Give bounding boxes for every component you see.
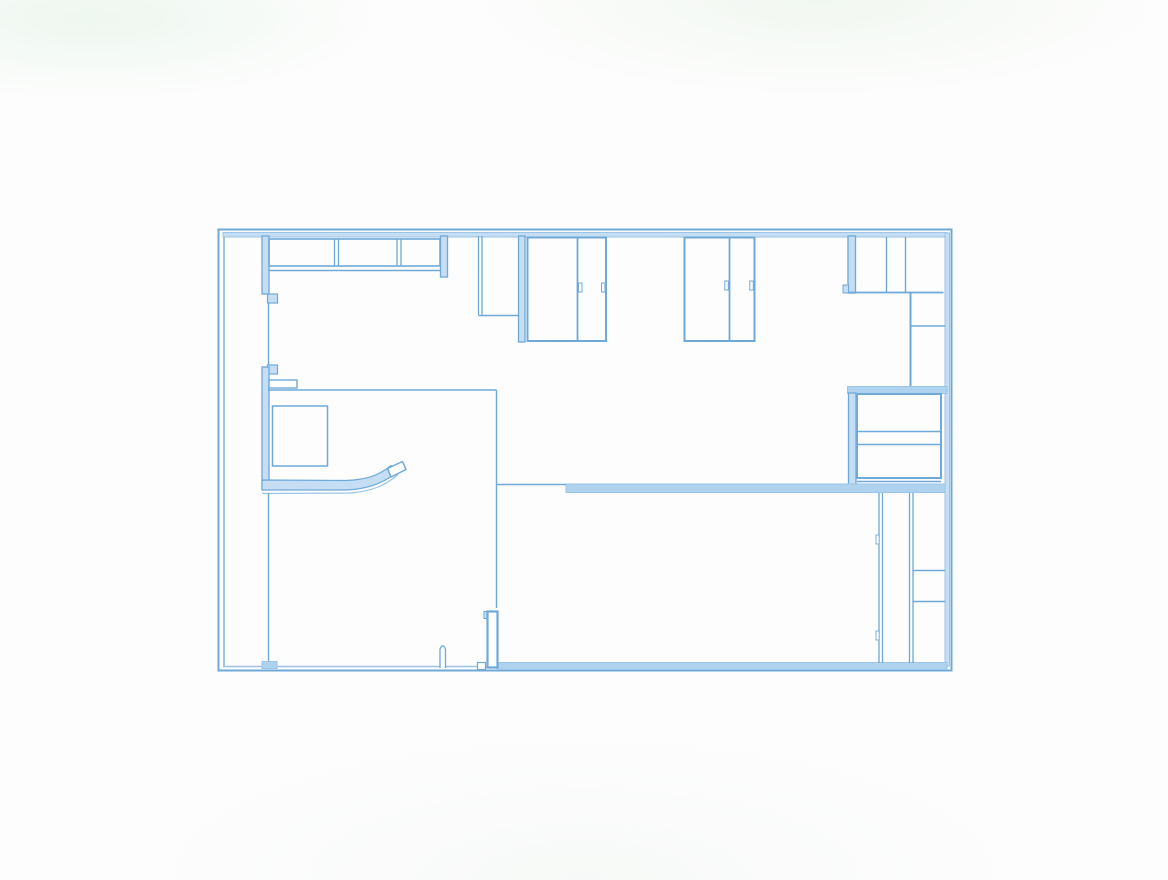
wall-pier-518 — [519, 236, 526, 342]
door-stop-pillar — [440, 646, 446, 668]
threshold-notch — [478, 663, 486, 670]
corridor-jamb-2 — [876, 631, 879, 640]
room-b-outline — [685, 238, 755, 342]
room-a-outline — [528, 238, 607, 342]
counter-curved-wall — [262, 466, 397, 491]
left-wall-stub — [269, 380, 297, 388]
outer-wall-right-band — [945, 233, 950, 666]
closet-box — [273, 406, 328, 466]
room-a-right-jamb — [602, 283, 606, 292]
room-a-divider-jamb — [579, 283, 583, 292]
counter-end-cap — [388, 462, 407, 478]
wall-low-right-band — [566, 484, 945, 493]
wall-847-lower — [849, 393, 857, 491]
corridor-jamb-1 — [876, 535, 879, 544]
outer-wall-top-band — [223, 233, 947, 238]
blueprint-page — [0, 0, 1168, 880]
room-b-right-jamb — [750, 281, 754, 290]
utility-box-outline — [857, 394, 941, 478]
door-pier — [488, 612, 498, 668]
wall-mid-right-band — [848, 387, 948, 394]
left-wall-upper-segment — [262, 236, 269, 294]
cabinet-run-outline — [269, 239, 440, 266]
wall-return-top — [441, 236, 448, 277]
wall-847-foot — [843, 285, 849, 293]
room-b-divider-jamb — [725, 281, 729, 290]
bottom-wall-thick-band — [497, 663, 947, 670]
left-wall-jamb-upper — [268, 294, 278, 303]
left-wall-base-foot — [262, 662, 277, 669]
wall-847-upper — [848, 236, 856, 293]
left-wall-lower-segment — [262, 367, 269, 489]
floor-plan-canvas — [0, 0, 1168, 880]
